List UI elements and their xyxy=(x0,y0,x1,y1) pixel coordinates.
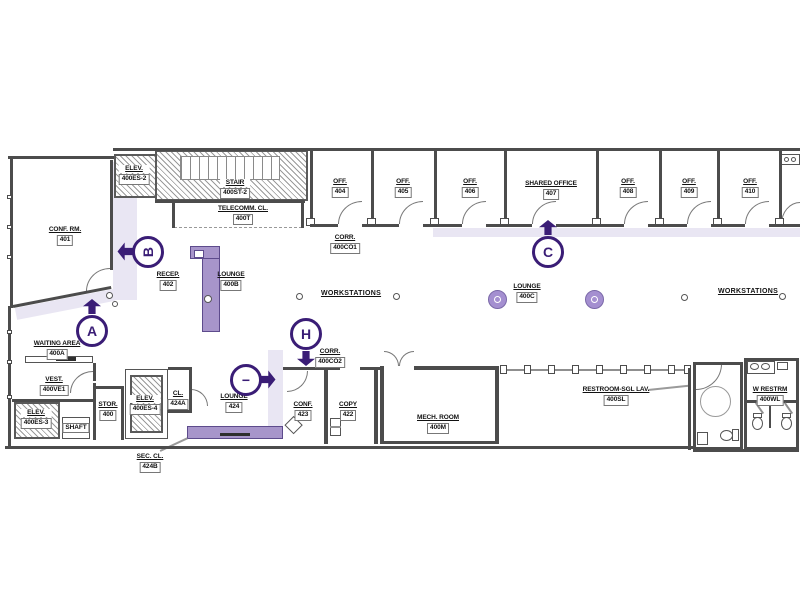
room-name: CL. xyxy=(167,390,188,398)
photo-marker-h[interactable]: H xyxy=(290,318,322,350)
wall xyxy=(8,306,11,448)
room-label-conf-423: CONF.423 xyxy=(293,401,312,421)
room-label-restroom-sgl: RESTROOM-SGL LAV.400SL xyxy=(583,386,650,406)
fixture xyxy=(753,413,762,418)
wall xyxy=(693,362,742,365)
room-number: 400 xyxy=(100,410,117,420)
wall xyxy=(12,399,95,402)
arrow-down-icon xyxy=(297,351,315,366)
room-number: 424B xyxy=(139,462,160,472)
room-number: 406 xyxy=(462,187,479,197)
wall xyxy=(434,150,437,226)
wall xyxy=(434,224,462,227)
ceiling-symbol-icon xyxy=(296,293,303,300)
room-number: 400C xyxy=(516,292,537,302)
room-name: CONF. RM. xyxy=(49,226,81,234)
room-name: OFF. xyxy=(395,178,412,186)
ceiling-symbol-icon xyxy=(204,295,212,303)
wall xyxy=(744,358,798,361)
room-name: TELECOMM. CL. xyxy=(218,205,268,213)
room-label-stor: STOR.400 xyxy=(98,401,117,421)
room-number: 400SL xyxy=(604,395,629,405)
room-number: 424 xyxy=(226,402,243,412)
column-base xyxy=(7,360,12,364)
room-number: 423 xyxy=(295,410,312,420)
column-base xyxy=(644,365,651,374)
room-name: OFF. xyxy=(681,178,698,186)
room-number: 407 xyxy=(543,189,560,199)
wall xyxy=(504,224,532,227)
wall xyxy=(556,224,596,227)
room-label-off-408: OFF.408 xyxy=(620,178,637,198)
floor-plan: CONF. RM.401 ELEV.400ES-2 STAIR400ST-2 T… xyxy=(0,0,800,600)
room-label-stair: STAIR400ST-2 xyxy=(220,179,250,199)
wall xyxy=(596,224,624,227)
column-base xyxy=(572,365,579,374)
wall xyxy=(93,383,96,440)
photo-marker-a[interactable]: A xyxy=(76,315,108,347)
wall xyxy=(5,446,694,449)
toilet-icon xyxy=(761,363,770,370)
column-base xyxy=(500,365,507,374)
furniture-notch xyxy=(194,250,204,258)
wall xyxy=(779,150,782,226)
wall xyxy=(362,224,371,227)
marker-letter: H xyxy=(301,326,311,342)
room-number: 400CO1 xyxy=(330,243,360,253)
column-base xyxy=(620,365,627,374)
wall xyxy=(371,224,399,227)
ceiling-symbol-icon xyxy=(779,293,786,300)
room-name: OFF. xyxy=(462,178,479,186)
room-name: STAIR xyxy=(220,179,250,187)
room-label-mech-room: MECH. ROOM400M xyxy=(417,414,459,434)
room-name: RECEP. xyxy=(157,271,180,279)
room-name: STOR. xyxy=(98,401,117,409)
room-label-recep: RECEP.402 xyxy=(157,271,180,291)
room-number: 409 xyxy=(681,187,698,197)
wall xyxy=(688,368,691,450)
wall xyxy=(740,362,743,450)
ceiling-symbol-icon xyxy=(106,292,113,299)
wall xyxy=(648,224,659,227)
fixture xyxy=(777,362,788,370)
room-label-shared-office-407: SHARED OFFICE407 xyxy=(525,180,577,200)
door-swing-icon xyxy=(687,201,711,224)
column-base xyxy=(7,195,12,199)
room-label-lounge-424: LOUNGE424 xyxy=(220,393,247,413)
room-name: OFF. xyxy=(620,178,637,186)
room-label-shaft: SHAFT xyxy=(62,422,89,433)
fixture xyxy=(732,429,739,441)
wall xyxy=(155,200,305,203)
wall xyxy=(374,367,378,444)
ceiling-symbol-icon xyxy=(393,293,400,300)
door-swing-icon xyxy=(745,201,769,224)
wall xyxy=(310,224,338,227)
wall xyxy=(659,224,687,227)
room-label-telecomm: TELECOMM. CL.400T xyxy=(218,205,268,225)
room-number: 422 xyxy=(340,410,357,420)
room-name: RESTROOM-SGL LAV. xyxy=(583,386,650,394)
door-swing-icon xyxy=(532,201,556,224)
door-swing-icon xyxy=(399,351,414,366)
lounge-table-ring xyxy=(494,296,501,303)
room-label-corr-400co1: CORR.400CO1 xyxy=(330,234,360,254)
wall xyxy=(423,224,434,227)
wall xyxy=(380,441,499,444)
room-number: 400ES-2 xyxy=(119,174,150,184)
room-number: 400M xyxy=(427,423,449,433)
wall xyxy=(659,150,662,226)
room-number: 400VE1 xyxy=(40,385,69,395)
room-name: LOUNGE xyxy=(217,271,244,279)
leader-line xyxy=(160,437,188,451)
ceiling-symbol-icon xyxy=(112,301,118,307)
room-number: 400WL xyxy=(757,395,783,405)
wall xyxy=(693,447,742,450)
leader-line xyxy=(648,385,690,391)
turning-circle-icon xyxy=(700,386,731,417)
room-label-cl-424a: CL.424A xyxy=(167,390,188,410)
room-name: ELEV. xyxy=(21,409,52,417)
wall xyxy=(769,402,771,428)
room-number: 400B xyxy=(220,280,241,290)
wall xyxy=(693,362,696,450)
door-swing-icon xyxy=(70,371,93,393)
stair-treads xyxy=(180,156,280,180)
break-line xyxy=(174,227,302,228)
room-label-off-409: OFF.409 xyxy=(681,178,698,198)
wall xyxy=(796,358,799,449)
wall xyxy=(96,386,124,389)
workstations-label-right: WORKSTATIONS xyxy=(718,287,778,296)
ceiling-symbol-icon xyxy=(791,157,796,162)
room-label-off-406: OFF.406 xyxy=(462,178,479,198)
room-name: VEST. xyxy=(40,376,69,384)
wall xyxy=(495,366,499,444)
room-name: COPY xyxy=(339,401,357,409)
photo-marker-tour[interactable]: − xyxy=(230,364,262,396)
room-name: CONF. xyxy=(293,401,312,409)
toilet-icon xyxy=(781,417,792,430)
room-label-elev-400es3: ELEV.400ES-3 xyxy=(21,409,52,429)
wall xyxy=(310,150,313,226)
door-swing-icon xyxy=(462,201,486,224)
door-swing-icon xyxy=(287,371,308,392)
lounge-table-ring xyxy=(591,296,598,303)
room-label-lounge-400c: LOUNGE400C xyxy=(513,283,540,303)
wall xyxy=(779,224,800,227)
wall xyxy=(110,160,113,270)
corridor-highlight xyxy=(433,228,800,237)
room-label-waiting-area: WAITING AREA400A xyxy=(34,340,81,360)
wall xyxy=(744,447,799,450)
room-number: 405 xyxy=(395,187,412,197)
wall xyxy=(414,366,498,370)
door-swing-icon xyxy=(624,201,648,224)
wall-light xyxy=(330,426,341,428)
column-base xyxy=(7,255,12,259)
photo-marker-b[interactable]: B xyxy=(132,236,164,268)
column-base xyxy=(668,365,675,374)
wall xyxy=(371,150,374,226)
wall xyxy=(113,148,800,151)
room-number: 404 xyxy=(332,187,349,197)
room-label-elev-400es4: ELEV.400ES-4 xyxy=(130,395,161,415)
room-name: CORR. xyxy=(315,348,345,356)
room-name: ELEV. xyxy=(130,395,161,403)
room-number: 400CO2 xyxy=(315,357,345,367)
fixture xyxy=(782,413,791,418)
wall xyxy=(717,150,720,226)
room-label-corr-400co2: CORR.400CO2 xyxy=(315,348,345,368)
room-name: LOUNGE xyxy=(513,283,540,291)
room-label-sec-cl: SEC. CL.424B xyxy=(137,453,164,473)
room-number: 400ES-3 xyxy=(21,418,52,428)
fixture xyxy=(697,432,708,445)
ceiling-symbol-icon xyxy=(784,157,789,162)
annotation-text: WORKSTATIONS xyxy=(718,287,778,296)
wall xyxy=(324,367,328,444)
room-number: 400A xyxy=(46,349,67,359)
room-label-elev-400es2: ELEV.400ES-2 xyxy=(119,165,150,185)
marker-letter: A xyxy=(87,323,97,339)
column-base xyxy=(524,365,531,374)
room-name: ELEV. xyxy=(119,165,150,173)
room-label-lounge-400b: LOUNGE400B xyxy=(217,271,244,291)
room-number: 400T xyxy=(233,214,253,224)
annotation-text: WORKSTATIONS xyxy=(321,289,381,298)
column-base xyxy=(548,365,555,374)
room-name: SHARED OFFICE xyxy=(525,180,577,188)
marker-letter: C xyxy=(543,244,553,260)
wall xyxy=(769,224,779,227)
wall xyxy=(189,367,192,413)
room-label-copy-422: COPY422 xyxy=(339,401,357,421)
toilet-icon xyxy=(752,417,763,430)
wall xyxy=(121,386,124,440)
corridor-highlight xyxy=(268,350,283,428)
wall xyxy=(172,202,175,228)
toilet-icon xyxy=(750,363,759,370)
room-number: 408 xyxy=(620,187,637,197)
wall xyxy=(360,367,382,370)
wall xyxy=(744,358,747,449)
room-label-conf-401: CONF. RM.401 xyxy=(49,226,81,246)
column-base xyxy=(7,330,12,334)
room-label-off-404: OFF.404 xyxy=(332,178,349,198)
room-number: 402 xyxy=(160,280,177,290)
room-name: SHAFT xyxy=(62,423,89,433)
room-label-w-restrm: W RESTRM400WL xyxy=(753,386,788,406)
wall xyxy=(717,224,745,227)
room-number: 400ST-2 xyxy=(220,188,250,198)
room-name: SEC. CL. xyxy=(137,453,164,461)
room-name: OFF. xyxy=(332,178,349,186)
wall xyxy=(168,410,191,413)
wall xyxy=(10,156,13,308)
room-label-vest: VEST.400VE1 xyxy=(40,376,69,396)
marker-letter: − xyxy=(242,372,250,388)
door-swing-icon xyxy=(338,201,362,224)
room-label-off-410: OFF.410 xyxy=(742,178,759,198)
room-label-off-405: OFF.405 xyxy=(395,178,412,198)
room-name: MECH. ROOM xyxy=(417,414,459,422)
room-name: CORR. xyxy=(330,234,360,242)
photo-marker-c[interactable]: C xyxy=(532,236,564,268)
wall xyxy=(380,366,384,444)
room-name: WAITING AREA xyxy=(34,340,81,348)
wall xyxy=(504,150,507,226)
column-base xyxy=(7,225,12,229)
room-number: 424A xyxy=(167,399,188,409)
room-number: 400ES-4 xyxy=(130,404,161,414)
wall xyxy=(8,156,114,159)
room-name: W RESTRM xyxy=(753,386,788,394)
wall xyxy=(486,224,504,227)
door-swing-icon xyxy=(384,351,399,366)
room-name: OFF. xyxy=(742,178,759,186)
marker-letter: B xyxy=(140,247,156,257)
door-swing-icon xyxy=(191,389,208,406)
ceiling-symbol-icon xyxy=(681,294,688,301)
wall xyxy=(301,202,304,228)
door-swing-icon xyxy=(399,201,423,224)
column-base xyxy=(596,365,603,374)
bench-top xyxy=(220,433,250,436)
wall xyxy=(596,150,599,226)
room-number: 401 xyxy=(57,235,74,245)
workstations-label-left: WORKSTATIONS xyxy=(321,289,381,298)
wall xyxy=(93,363,96,381)
room-number: 410 xyxy=(742,187,759,197)
